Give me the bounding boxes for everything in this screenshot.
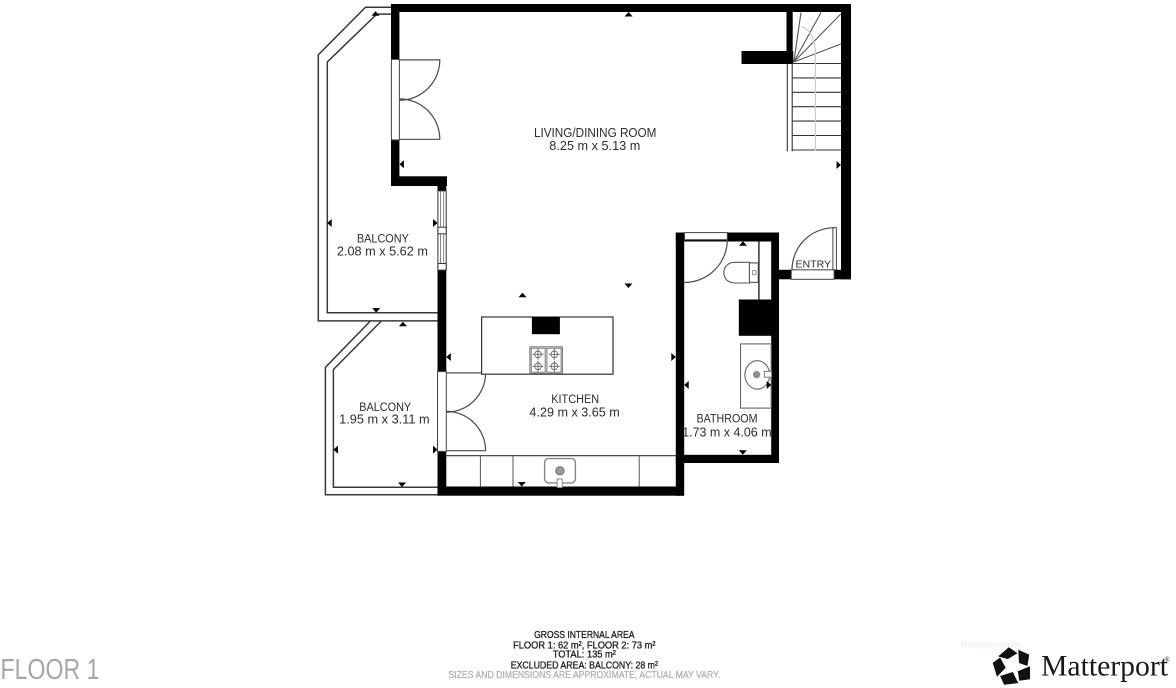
svg-text:4.29 m x 3.65 m: 4.29 m x 3.65 m	[529, 405, 619, 419]
svg-text:KITCHEN: KITCHEN	[551, 394, 599, 406]
svg-text:8.25 m x 5.13 m: 8.25 m x 5.13 m	[549, 138, 640, 153]
svg-text:ENTRY: ENTRY	[796, 259, 832, 270]
svg-text:Matterport: Matterport	[1041, 651, 1168, 683]
svg-text:®: ®	[1165, 656, 1171, 664]
svg-text:FLOOR 1: FLOOR 1	[1, 654, 100, 686]
svg-text:1.95 m x 3.11 m: 1.95 m x 3.11 m	[339, 413, 430, 427]
svg-text:SIZES AND DIMENSIONS ARE APPRO: SIZES AND DIMENSIONS ARE APPROXIMATE, AC…	[448, 670, 720, 681]
svg-text:1.73 m x 4.06 m: 1.73 m x 4.06 m	[682, 425, 771, 439]
svg-text:GROSS INTERNAL AREA: GROSS INTERNAL AREA	[534, 630, 634, 641]
svg-text:Imagestatic: Imagestatic	[961, 639, 1023, 649]
svg-text:TOTAL: 135 m²: TOTAL: 135 m²	[553, 649, 617, 660]
svg-text:2.08 m x 5.62 m: 2.08 m x 5.62 m	[337, 244, 428, 258]
svg-text:BATHROOM: BATHROOM	[697, 413, 758, 425]
